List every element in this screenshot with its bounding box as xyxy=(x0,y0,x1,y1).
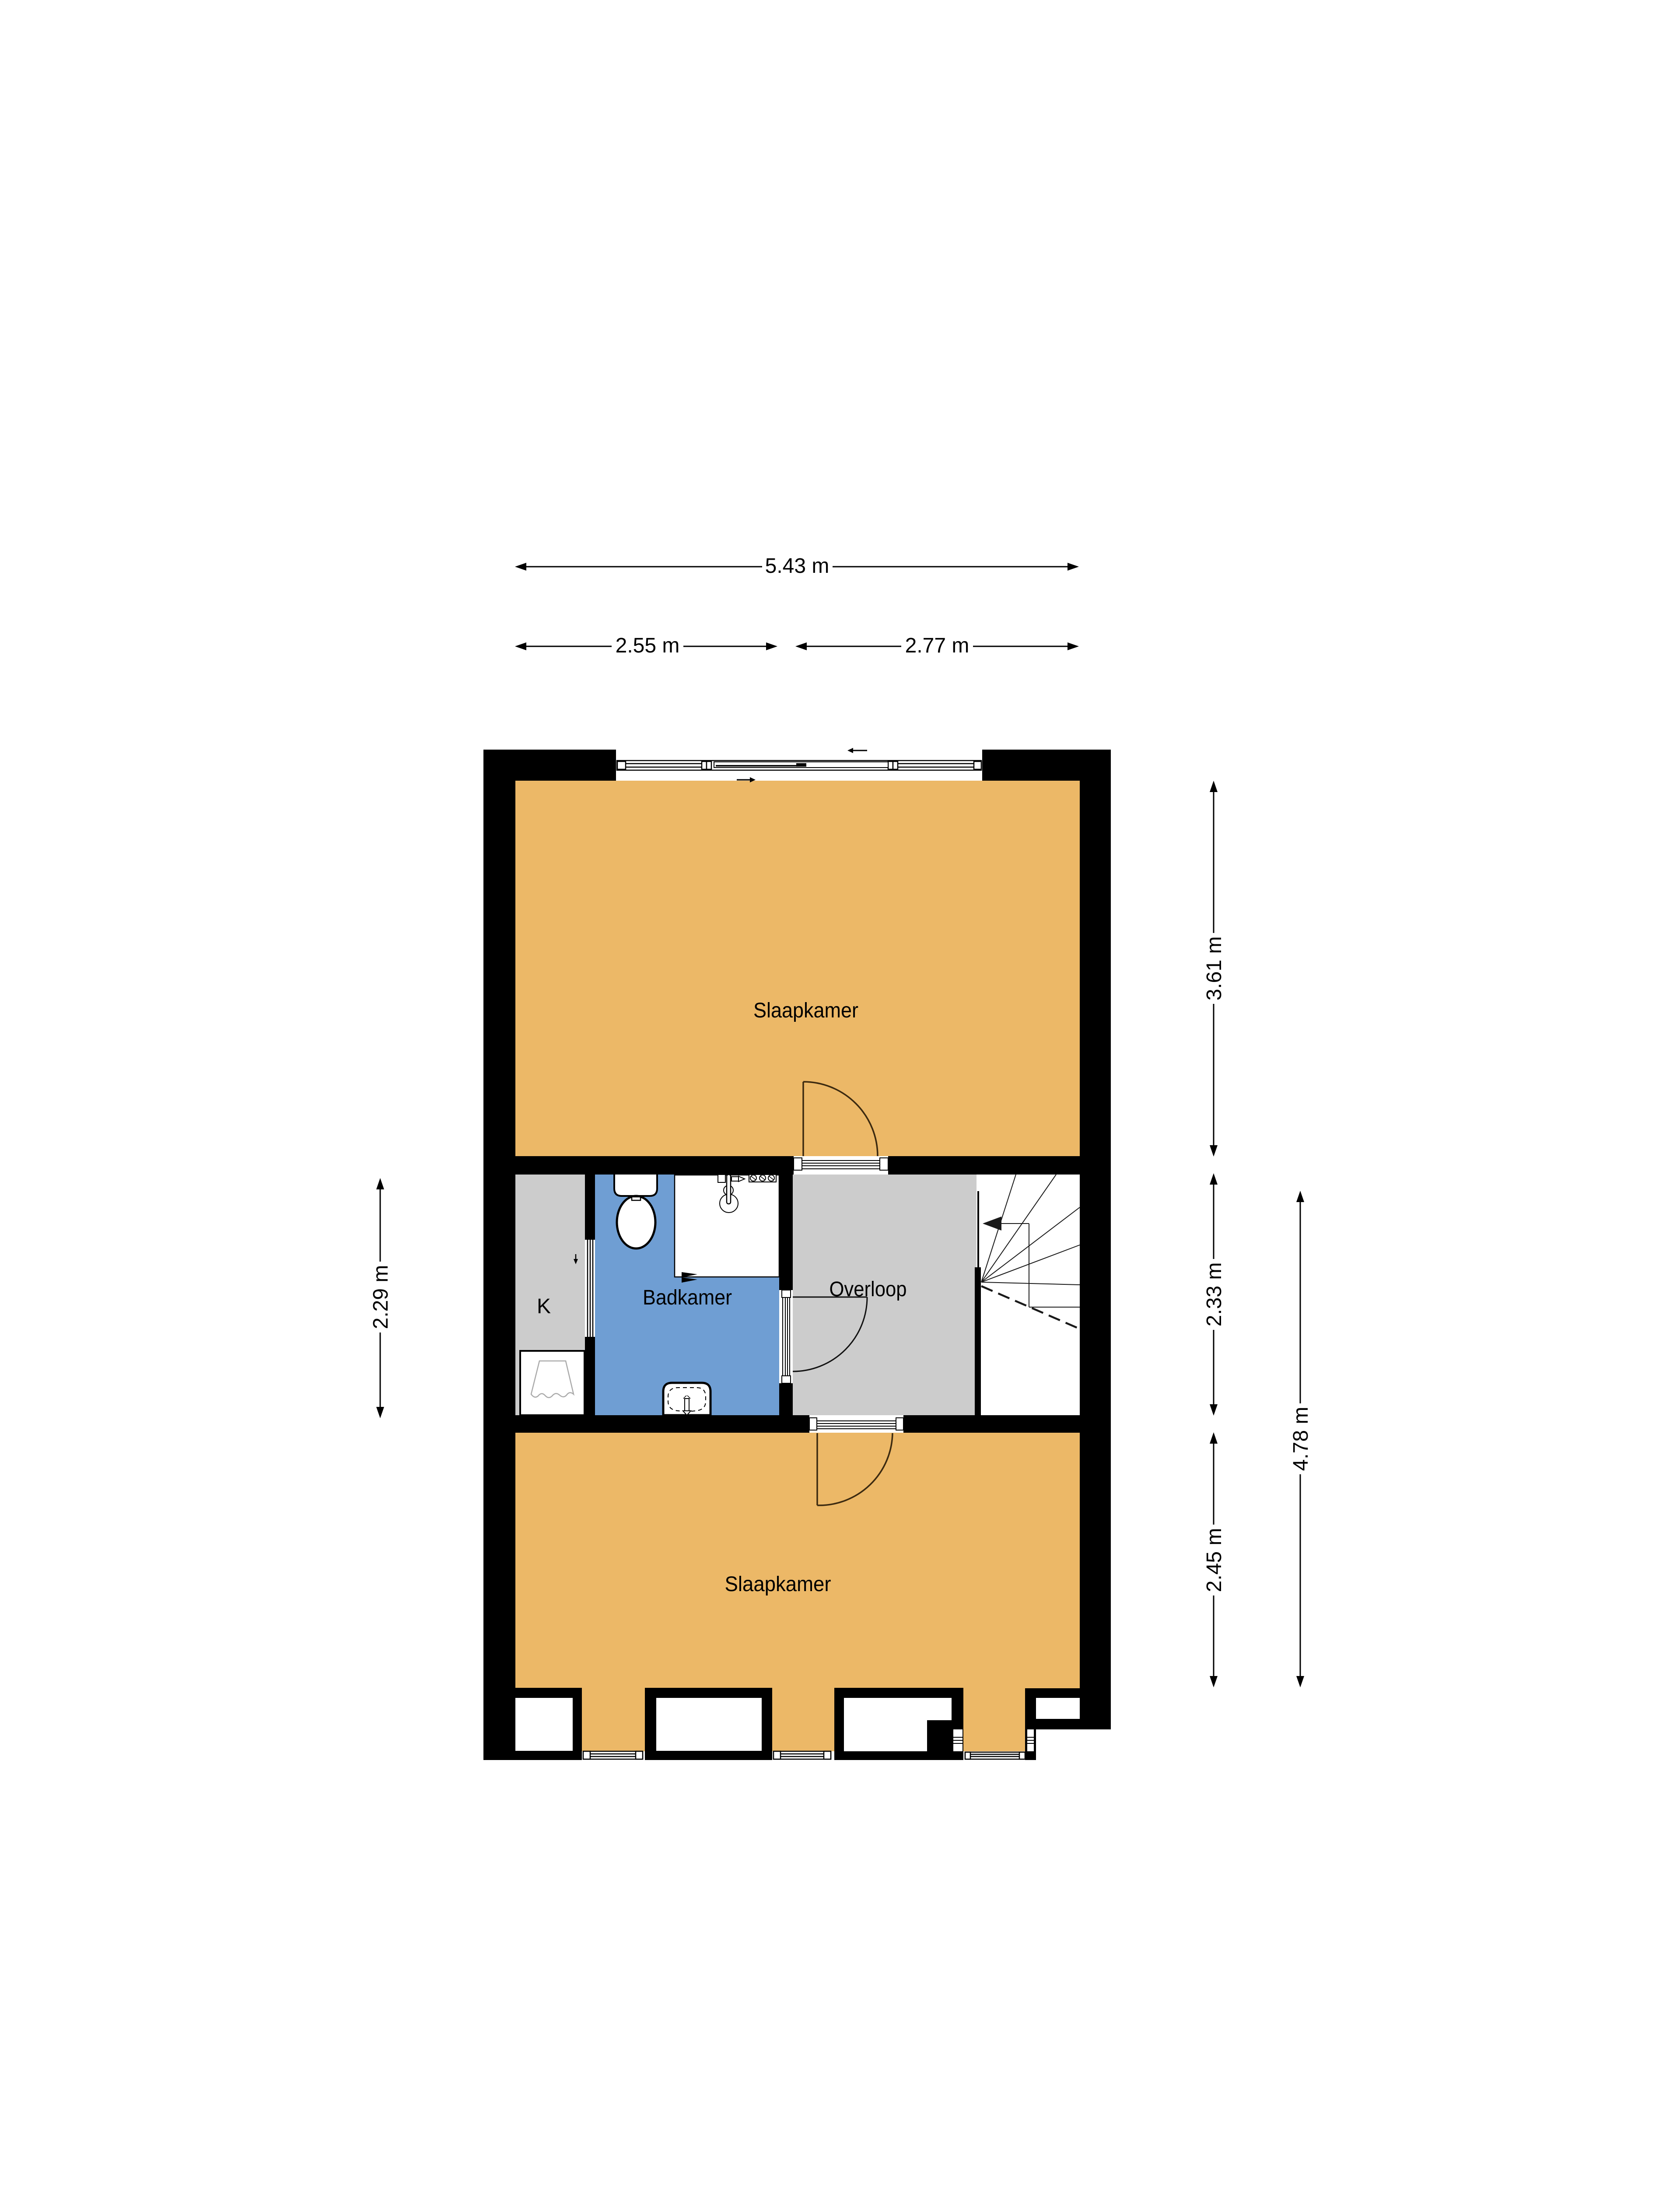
svg-text:3.61 m: 3.61 m xyxy=(1203,936,1226,1001)
svg-text:Slaapkamer: Slaapkamer xyxy=(725,1573,831,1596)
svg-text:4.78 m: 4.78 m xyxy=(1289,1407,1312,1471)
svg-text:Overloop: Overloop xyxy=(829,1278,907,1301)
svg-text:2.55 m: 2.55 m xyxy=(616,634,680,657)
svg-text:2.33 m: 2.33 m xyxy=(1203,1262,1226,1327)
svg-text:Badkamer: Badkamer xyxy=(643,1286,732,1309)
svg-text:Slaapkamer: Slaapkamer xyxy=(753,999,858,1022)
svg-text:5.43 m: 5.43 m xyxy=(765,554,829,578)
svg-text:K: K xyxy=(537,1295,551,1318)
svg-text:2.77 m: 2.77 m xyxy=(905,634,969,657)
svg-text:2.45 m: 2.45 m xyxy=(1203,1528,1226,1592)
svg-text:2.29 m: 2.29 m xyxy=(369,1265,392,1329)
